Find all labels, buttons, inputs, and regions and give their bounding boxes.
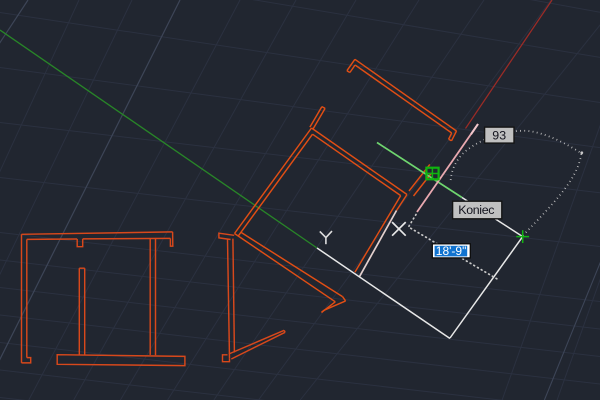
svg-text:18'-9": 18'-9" <box>436 244 467 258</box>
svg-text:93: 93 <box>492 129 506 143</box>
svg-text:Koniec: Koniec <box>458 203 494 217</box>
